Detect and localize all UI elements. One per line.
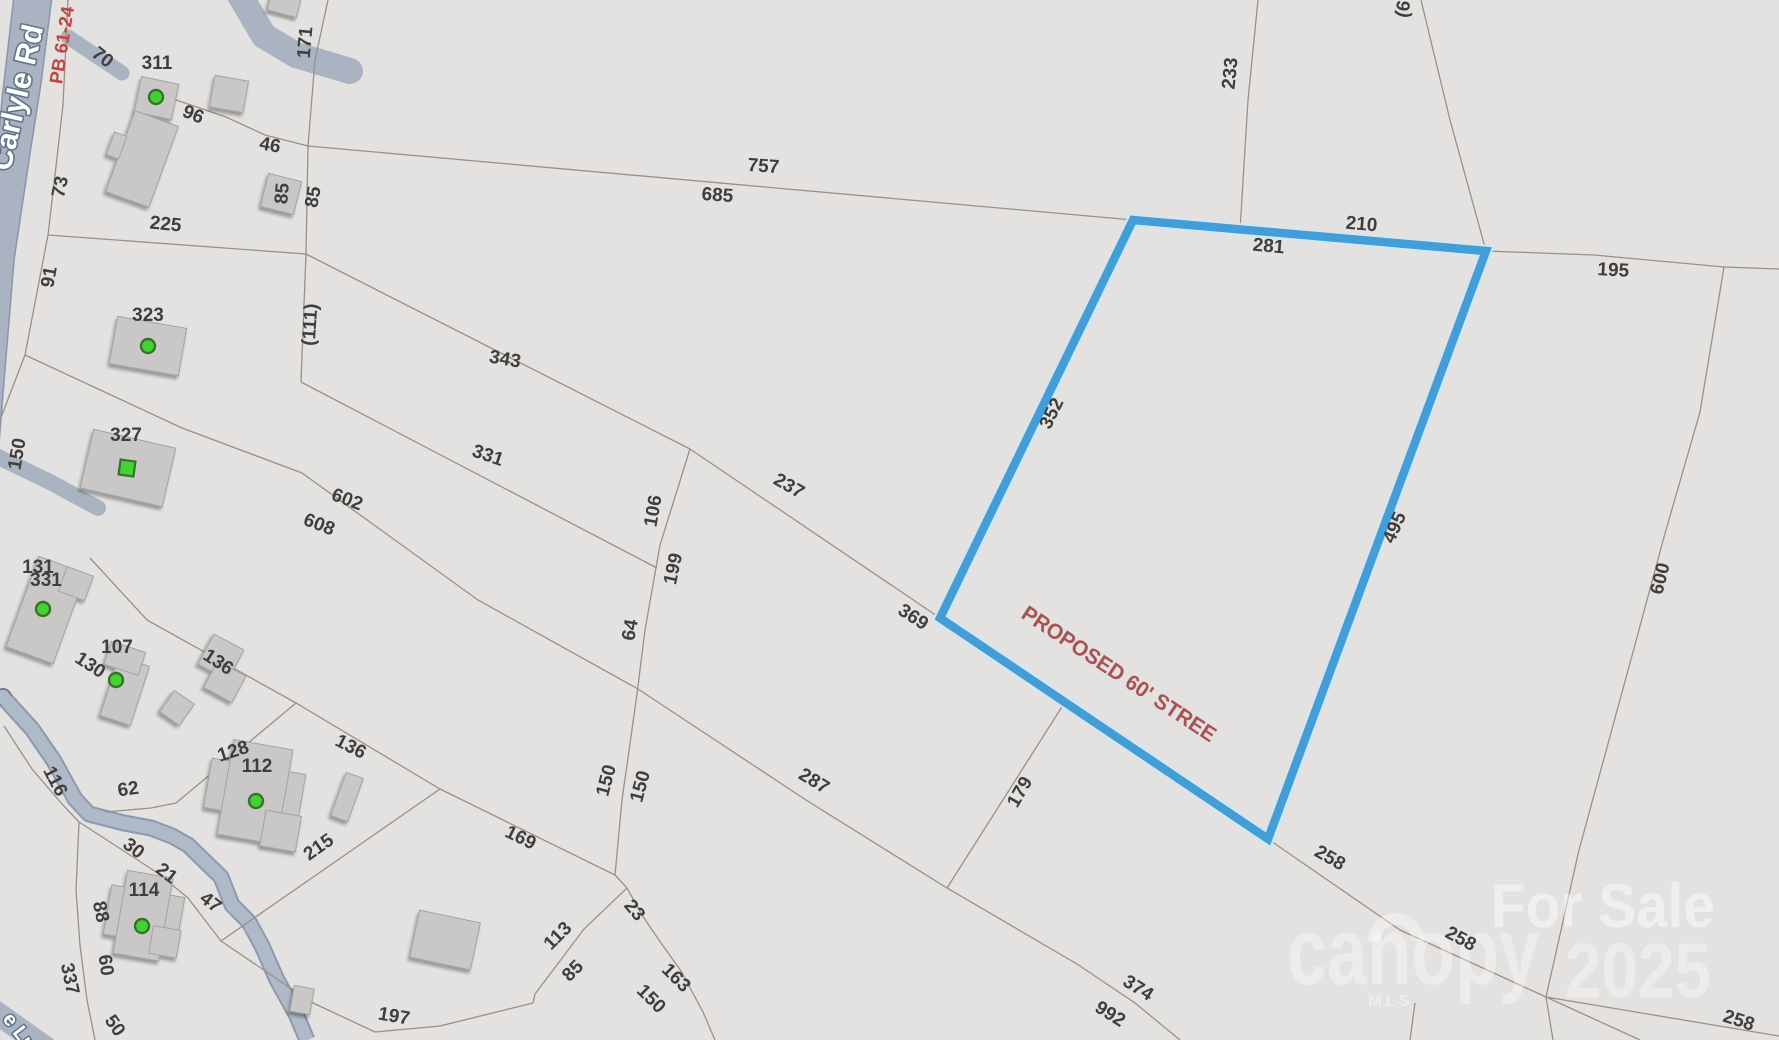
svg-text:60: 60 <box>94 953 118 977</box>
svg-text:331: 331 <box>30 570 62 591</box>
svg-text:88: 88 <box>88 899 113 924</box>
svg-text:91: 91 <box>37 264 61 289</box>
svg-text:311: 311 <box>142 53 173 74</box>
svg-text:114: 114 <box>129 880 160 901</box>
svg-text:225: 225 <box>149 212 183 236</box>
svg-text:757: 757 <box>747 155 780 178</box>
svg-text:195: 195 <box>1597 259 1630 282</box>
svg-text:(111): (111) <box>299 303 323 347</box>
svg-text:46: 46 <box>258 133 282 157</box>
svg-text:281: 281 <box>1252 235 1286 259</box>
svg-text:685: 685 <box>701 184 735 207</box>
svg-text:85: 85 <box>271 182 294 205</box>
svg-text:MLS: MLS <box>1368 991 1413 1010</box>
svg-text:327: 327 <box>110 425 142 446</box>
svg-text:85: 85 <box>301 184 325 209</box>
svg-text:(6: (6 <box>1392 0 1416 19</box>
svg-text:323: 323 <box>132 305 164 326</box>
svg-text:233: 233 <box>1218 57 1242 91</box>
svg-text:canopy: canopy <box>1287 898 1539 1005</box>
svg-text:2025: 2025 <box>1565 928 1711 1014</box>
svg-text:62: 62 <box>116 778 140 802</box>
svg-text:171: 171 <box>294 25 318 59</box>
svg-text:210: 210 <box>1345 213 1378 237</box>
svg-text:112: 112 <box>242 756 273 777</box>
svg-text:107: 107 <box>101 637 133 658</box>
svg-text:64: 64 <box>618 617 642 642</box>
svg-text:73: 73 <box>48 174 73 199</box>
